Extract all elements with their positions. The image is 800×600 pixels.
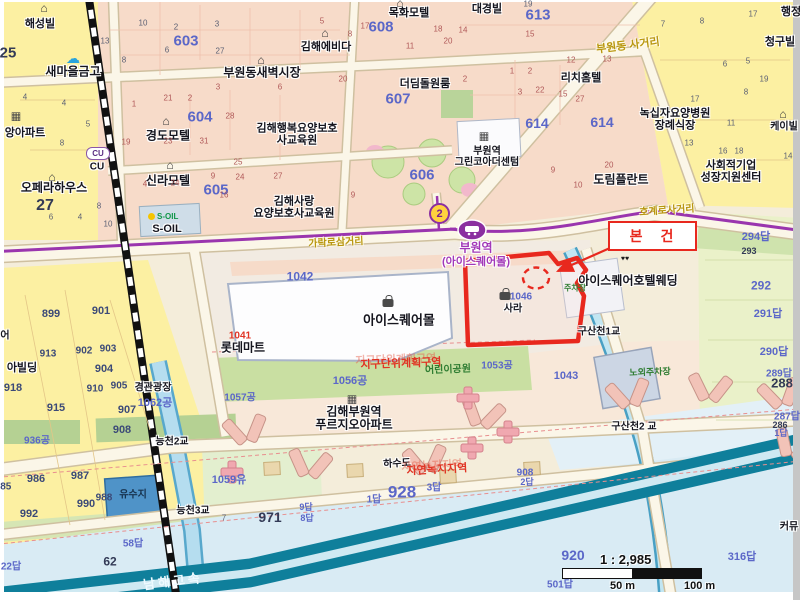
soil-gas-logo: S-OIL xyxy=(148,212,178,221)
scale-tick-50m: 50 m xyxy=(610,580,635,592)
route-number-badge: 2 xyxy=(429,203,450,224)
map-scale: 1 : 2,985 50 m 100 m xyxy=(548,552,738,594)
mall-building xyxy=(228,272,452,361)
scanned-cadastral-map: 해성빌새마을금고부원동새벽시장김해에비다목화모텔대경빌청구빌행정경도모텔김해행복… xyxy=(0,0,800,600)
greencore-building xyxy=(457,118,521,159)
scan-margin-right xyxy=(793,0,800,600)
scale-bar-black-half xyxy=(632,569,701,578)
station-name-label: 부원역 xyxy=(459,241,492,254)
scale-bar-white-half xyxy=(563,569,632,578)
map-graphics xyxy=(0,0,800,600)
station-alias-label: (아이스퀘어몰) xyxy=(442,256,510,268)
scan-margin-left xyxy=(0,0,4,600)
subject-annotation-box: 본 건 xyxy=(608,221,697,251)
scale-ratio-label: 1 : 2,985 xyxy=(600,552,651,567)
scale-tick-100m: 100 m xyxy=(684,580,715,592)
scale-bar xyxy=(562,568,702,579)
cu-store-logo: CU xyxy=(86,147,110,160)
scan-margin-top xyxy=(0,0,800,2)
